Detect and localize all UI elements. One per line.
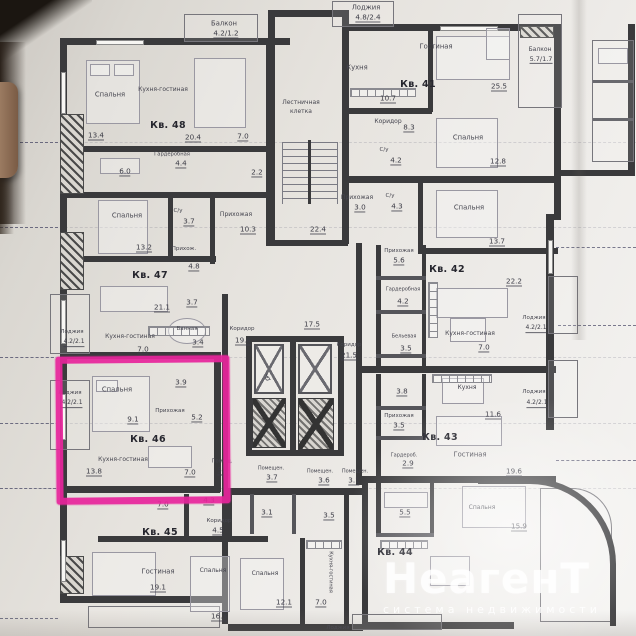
wall-segment [348, 108, 432, 114]
partition-wall [292, 494, 296, 534]
room-area-value: 11.6 [485, 410, 501, 419]
partition-wall [376, 406, 426, 410]
furniture-outline [90, 64, 110, 76]
finger-photo-artifact [0, 82, 18, 178]
wall-segment [556, 170, 635, 176]
photo-edge-shadow-lower [0, 176, 14, 234]
room-area-value: 21.1 [154, 303, 170, 312]
wall-segment [344, 490, 349, 630]
room-label: Гардеробная [154, 152, 190, 157]
furniture-outline [114, 64, 134, 76]
room-area-value: 4.2/1.2 [213, 29, 238, 38]
wall-segment [422, 245, 426, 369]
room-label: Гостиная [453, 451, 486, 458]
apartment-41-label: Кв. 41 [400, 80, 436, 90]
room-area-value: 7.0 [237, 132, 248, 141]
room-label: Кухня-гостиная [327, 551, 332, 593]
apartment-46-highlight [55, 355, 230, 505]
room-area-value: 4.4 [175, 159, 186, 168]
room-area-value: 3.5 [323, 511, 334, 520]
window [61, 72, 66, 114]
room-label: Лоджия [522, 316, 545, 322]
room-area-value: 22.4 [310, 225, 326, 234]
guide-line [0, 488, 56, 489]
room-area-value: 3.0 [354, 203, 365, 212]
room-area-value: 4.8 [188, 262, 199, 271]
room-area-value: 10.3 [240, 225, 256, 234]
partition-wall [376, 436, 426, 440]
paper-fold-shadow [0, 610, 636, 636]
room-area-value: 19.1 [150, 583, 166, 592]
partition-wall [250, 494, 254, 534]
room-area-value: 19.8 [235, 336, 251, 345]
elevator-cab [254, 344, 284, 394]
apartment-43-label: Кв. 43 [422, 433, 458, 443]
furniture-outline [436, 118, 498, 168]
partition-wall [376, 354, 426, 358]
room-area-value: 12.8 [490, 157, 506, 166]
room-label: Спальня [95, 91, 125, 98]
wall-segment [342, 10, 349, 244]
room-label: Спальня [112, 212, 142, 219]
kitchen-unit [428, 282, 438, 338]
room-area-value: 7.0 [137, 345, 148, 354]
guide-line [556, 460, 636, 461]
room-label: Кухня-гостиная [105, 334, 155, 340]
room-label: Ванная [176, 327, 197, 333]
room-area-value: 4.3 [391, 202, 402, 211]
room-area-value: 15.9 [511, 522, 527, 531]
furniture-outline [190, 556, 230, 612]
wall-segment [268, 10, 275, 244]
room-label: Кухня [346, 64, 367, 71]
room-label: Лоджия [60, 330, 83, 336]
room-area-value: 3.7 [266, 473, 277, 482]
room-area-value: 3.6 [318, 476, 329, 485]
kitchen-unit [306, 540, 342, 549]
room-label: Лестничная [282, 100, 320, 106]
furniture-outline [430, 556, 470, 586]
room-label: Гостиная [419, 43, 452, 50]
wall-segment [418, 248, 558, 254]
room-area-value: 4.2 [397, 297, 408, 306]
room-area-value: 4.2/2.1 [63, 339, 84, 347]
room-label: Помещен. [342, 469, 368, 474]
elevator-cab [298, 344, 332, 394]
room-area-value: 4.5 [212, 526, 223, 535]
room-label: Помещен. [307, 469, 333, 474]
room-area-value: 5.5 [399, 508, 410, 517]
floorplan-photo: Балкон4.2/1.2Лоджия4.8/2.4Кухня10.7Кв. 4… [0, 0, 636, 636]
room-label: Кухня-гостиная [138, 87, 188, 93]
room-label: Прихожая [220, 212, 252, 218]
hatched-wall [60, 232, 84, 290]
room-area-value: 8.3 [403, 123, 414, 132]
elevator-shaft [252, 398, 286, 448]
apartment-45-label: Кв. 45 [142, 528, 178, 538]
room-label: Прихожая [384, 249, 413, 255]
room-area-value: 20.4 [185, 133, 201, 142]
room-area-value: 25.5 [491, 82, 507, 91]
room-area-value: 7.0 [315, 598, 326, 607]
room-label: Лоджия [352, 4, 381, 11]
room-area-value: 22.2 [506, 277, 522, 286]
furniture-outline [436, 288, 508, 318]
room-area-value: 3.7 [183, 217, 194, 226]
wheelchair-elevator-icon: ♿ [264, 374, 272, 383]
room-area-value: 13.7 [489, 237, 505, 246]
room-area-value: 21.5 [341, 351, 357, 360]
room-label: Кухня-гостиная [445, 331, 495, 337]
room-label: Спальня [252, 571, 279, 577]
apartment-44-label: Кв. 44 [377, 548, 413, 558]
room-area-value: 17.5 [304, 320, 320, 329]
room-area-value: 2.9 [402, 459, 413, 468]
wall-segment [210, 192, 215, 264]
guide-line [556, 247, 636, 248]
room-label: Лоджия [522, 390, 545, 396]
room-label: Бельевая [392, 334, 417, 339]
furniture-outline [384, 492, 428, 508]
partition-wall [376, 533, 434, 537]
room-label: Прихожая [341, 195, 373, 201]
room-area-value: 3.7 [186, 298, 197, 307]
room-label: С/у [380, 148, 389, 154]
room-area-value: 5.7/1.7 [530, 56, 553, 64]
room-label: Коридор [374, 119, 401, 125]
room-area-value: 3.5 [393, 421, 404, 430]
room-area-value: 4.2 [390, 156, 401, 165]
furniture-outline [486, 28, 510, 60]
wall-segment [60, 192, 268, 198]
room-area-value: 3.1 [348, 476, 359, 485]
guide-line [0, 357, 54, 358]
wall-segment [356, 243, 362, 485]
window [61, 540, 66, 582]
room-label: Коридор [337, 343, 362, 349]
room-area-value: 3.4 [192, 338, 203, 347]
wall-segment [348, 176, 558, 183]
apartment-42-label: Кв. 42 [429, 265, 465, 275]
room-area-value: 4.8/2.4 [355, 13, 380, 22]
guide-line [0, 423, 54, 424]
partition-wall [376, 276, 426, 280]
room-label: Помещен. [258, 466, 284, 471]
room-area-value: 3.1 [261, 508, 272, 517]
room-area-value: 3.8 [396, 387, 407, 396]
balcony-outline [548, 360, 578, 418]
room-area-value: 3.5 [400, 344, 411, 353]
room-area-value: 10.7 [380, 94, 396, 103]
wall-segment [376, 483, 381, 535]
wall-segment [422, 374, 426, 436]
room-area-value: 5.6 [393, 256, 404, 265]
wall-segment [356, 366, 556, 373]
room-area-value: 4.2/2.1 [525, 325, 546, 333]
room-label: Балкон [211, 20, 237, 27]
wall-segment [376, 374, 381, 480]
apartment-47-label: Кв. 47 [132, 271, 168, 281]
room-label: Кухня [458, 385, 477, 391]
hatched-wall [60, 114, 84, 194]
room-area-value: 4.2/2.1 [526, 400, 547, 408]
wall-segment [418, 183, 423, 253]
room-area-value: 7.0 [478, 343, 489, 352]
elevator-shaft [298, 398, 334, 450]
room-area-value: 6.0 [119, 167, 130, 176]
room-area-value: 13.2 [136, 243, 152, 252]
wall-segment [428, 26, 433, 112]
room-label: Спальня [453, 134, 483, 141]
room-area-value: 13.4 [88, 131, 104, 140]
room-area-value: 19.6 [506, 467, 522, 476]
paper-crease [571, 0, 587, 340]
wall-segment [430, 483, 434, 535]
room-label: Спальня [200, 568, 227, 574]
room-label: С/у [174, 209, 183, 215]
partition-wall [376, 310, 426, 314]
window [96, 40, 144, 45]
room-label: Коридор [230, 327, 255, 333]
wall-segment [308, 140, 311, 204]
room-label: С/у [386, 194, 395, 200]
wall-segment [362, 483, 368, 628]
room-area-value: 2.2 [251, 168, 262, 177]
room-label: Коридор [207, 519, 232, 525]
wall-segment [246, 450, 344, 456]
room-label: Балкон [529, 47, 552, 53]
room-label: Прихожая [384, 414, 413, 420]
room-label: Прихож. [172, 247, 197, 253]
room-label: клетка [290, 109, 312, 115]
furniture-outline [598, 48, 628, 64]
room-label: Спальня [454, 204, 484, 211]
wall-segment [290, 336, 296, 456]
furniture-outline [194, 58, 246, 128]
kitchen-unit [432, 374, 492, 383]
apartment-48-label: Кв. 48 [150, 121, 186, 131]
window [548, 240, 553, 274]
wall-segment [266, 240, 348, 246]
wall-segment [376, 245, 381, 369]
room-label: Гостиная [141, 568, 174, 575]
furniture-outline [436, 190, 498, 238]
room-area-value: 12.1 [276, 598, 292, 607]
room-label: Гардеробная [386, 287, 420, 292]
room-label: Спальня [469, 505, 496, 511]
wall-segment [98, 536, 268, 542]
